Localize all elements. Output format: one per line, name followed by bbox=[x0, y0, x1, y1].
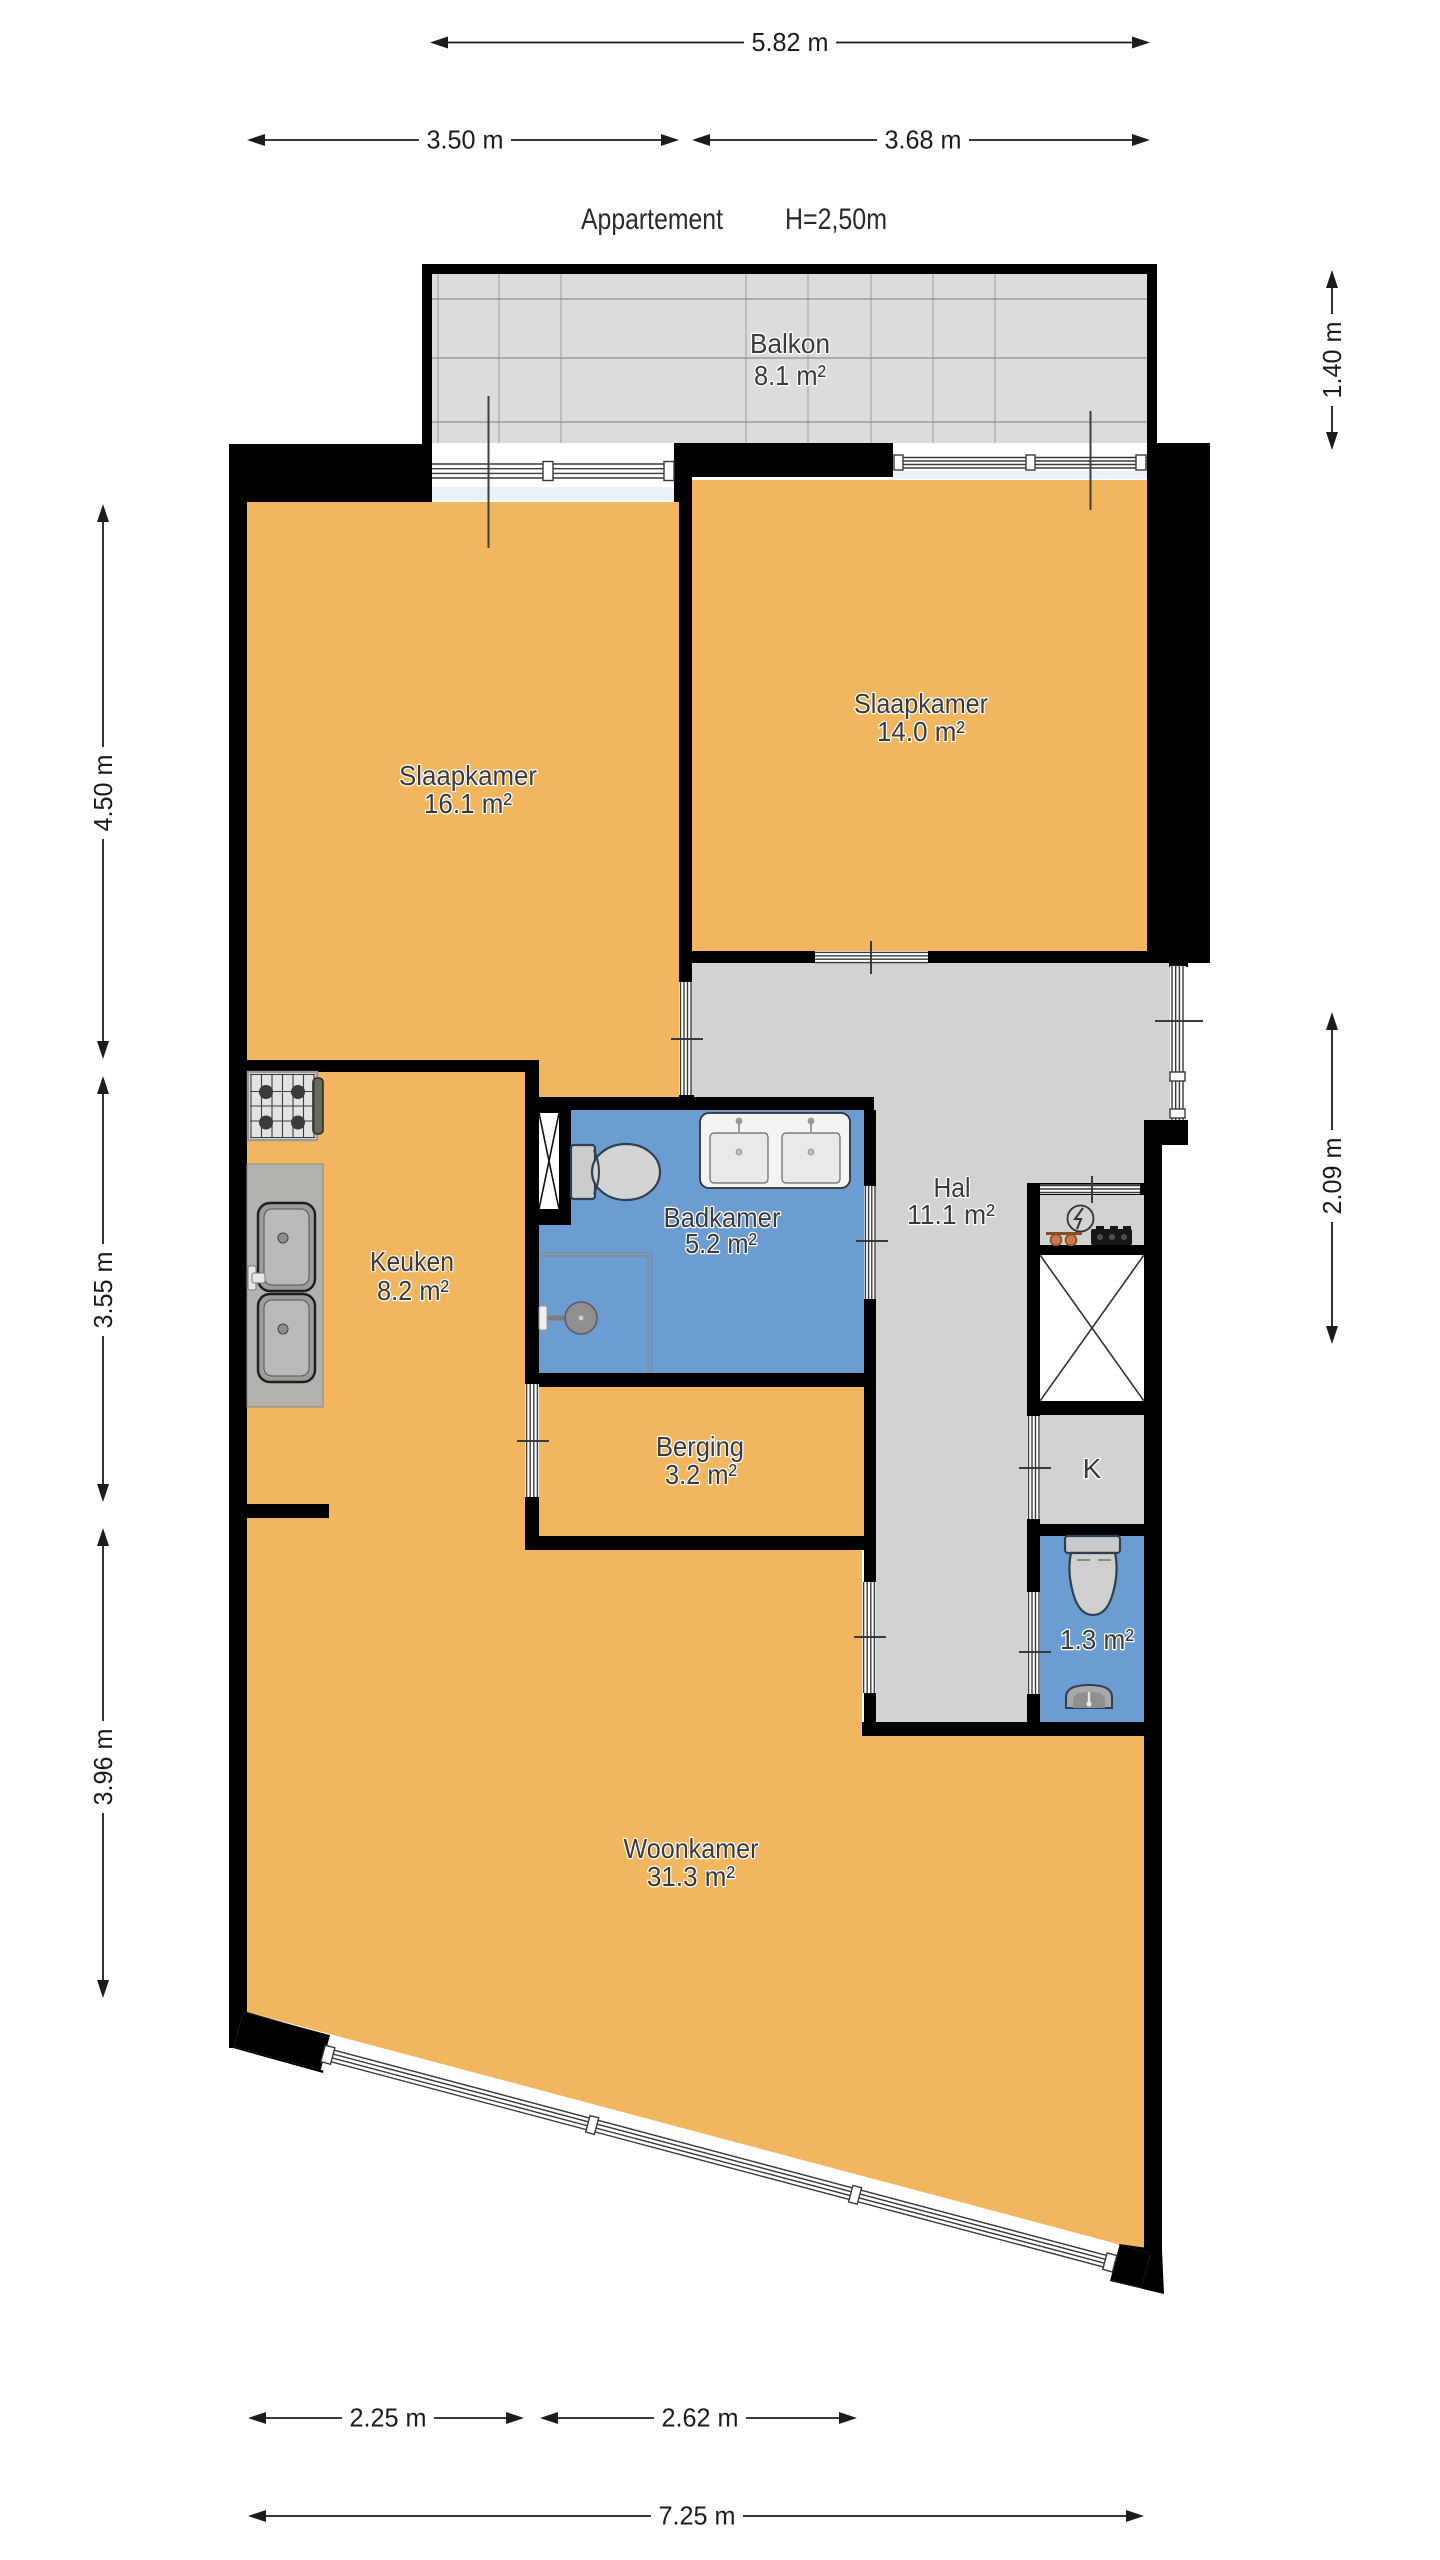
svg-text:4.50 m: 4.50 m bbox=[88, 755, 118, 832]
svg-text:11.1 m²: 11.1 m² bbox=[907, 1199, 995, 1230]
svg-text:2.62 m: 2.62 m bbox=[662, 2403, 739, 2433]
svg-text:Appartement: Appartement bbox=[581, 203, 724, 236]
svg-text:5.82 m: 5.82 m bbox=[752, 27, 829, 57]
svg-text:Slaapkamer: Slaapkamer bbox=[854, 688, 988, 719]
svg-text:7.25 m: 7.25 m bbox=[659, 2501, 736, 2531]
svg-text:2.25 m: 2.25 m bbox=[350, 2403, 427, 2433]
svg-text:16.1 m²: 16.1 m² bbox=[424, 788, 512, 819]
svg-text:Berging: Berging bbox=[656, 1431, 744, 1462]
svg-text:2.09 m: 2.09 m bbox=[1317, 1138, 1347, 1215]
svg-text:8.1 m²: 8.1 m² bbox=[754, 360, 826, 391]
svg-text:5.2 m²: 5.2 m² bbox=[685, 1228, 757, 1259]
svg-text:Woonkamer: Woonkamer bbox=[624, 1833, 759, 1864]
svg-text:14.0 m²: 14.0 m² bbox=[877, 716, 965, 747]
svg-text:Balkon: Balkon bbox=[750, 328, 830, 359]
svg-text:3.50 m: 3.50 m bbox=[427, 125, 504, 155]
svg-text:8.2 m²: 8.2 m² bbox=[377, 1275, 449, 1306]
svg-text:31.3 m²: 31.3 m² bbox=[647, 1861, 735, 1892]
svg-text:H=2,50m: H=2,50m bbox=[785, 203, 887, 236]
svg-text:1.40 m: 1.40 m bbox=[1317, 322, 1347, 399]
svg-text:1.3 m²: 1.3 m² bbox=[1060, 1624, 1134, 1655]
svg-text:3.96 m: 3.96 m bbox=[88, 1729, 118, 1806]
svg-text:Keuken: Keuken bbox=[370, 1246, 454, 1277]
svg-text:Slaapkamer: Slaapkamer bbox=[399, 760, 537, 791]
svg-text:3.68 m: 3.68 m bbox=[885, 125, 962, 155]
svg-text:K: K bbox=[1083, 1453, 1102, 1484]
svg-text:3.55 m: 3.55 m bbox=[88, 1252, 118, 1329]
svg-text:3.2 m²: 3.2 m² bbox=[665, 1459, 737, 1490]
